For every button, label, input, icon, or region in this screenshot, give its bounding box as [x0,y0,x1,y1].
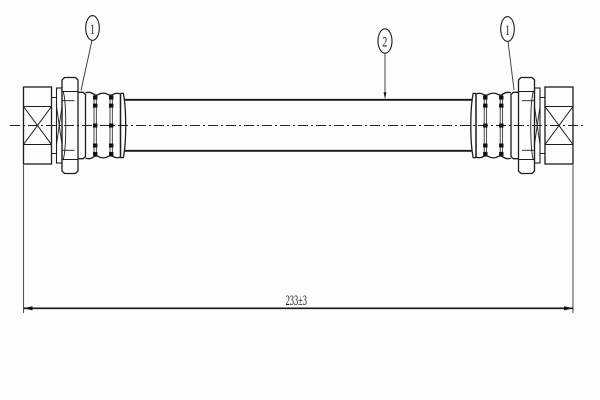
svg-text:233±3: 233±3 [286,292,307,309]
svg-text:2: 2 [382,33,387,49]
svg-text:1: 1 [90,21,95,37]
svg-text:1: 1 [505,22,510,38]
